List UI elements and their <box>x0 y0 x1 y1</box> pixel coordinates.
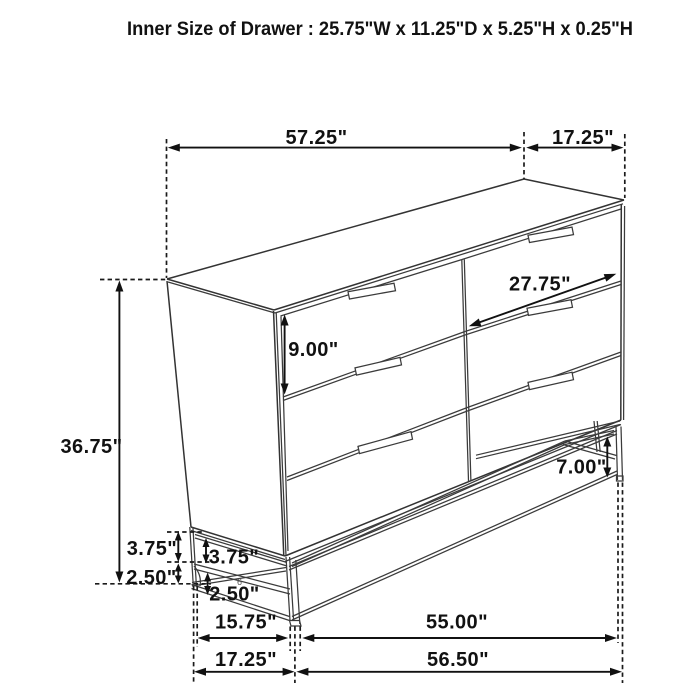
svg-text:17.25": 17.25" <box>215 649 277 671</box>
svg-text:3.75": 3.75" <box>127 538 177 560</box>
svg-text:15.75": 15.75" <box>215 612 277 634</box>
svg-text:56.50": 56.50" <box>427 649 489 671</box>
svg-text:17.25": 17.25" <box>552 127 614 149</box>
svg-text:3.75": 3.75" <box>209 547 259 569</box>
svg-text:Inner Size of Drawer : 25.75"W: Inner Size of Drawer : 25.75"W x 11.25"D… <box>127 19 633 40</box>
svg-text:57.25": 57.25" <box>286 127 348 149</box>
svg-text:55.00": 55.00" <box>426 612 488 634</box>
svg-text:36.75": 36.75" <box>61 436 123 458</box>
svg-text:2.50": 2.50" <box>126 567 176 589</box>
svg-text:27.75": 27.75" <box>509 274 571 296</box>
svg-text:7.00": 7.00" <box>556 457 606 479</box>
svg-text:9.00": 9.00" <box>288 339 338 361</box>
svg-text:2.50": 2.50" <box>209 584 259 606</box>
